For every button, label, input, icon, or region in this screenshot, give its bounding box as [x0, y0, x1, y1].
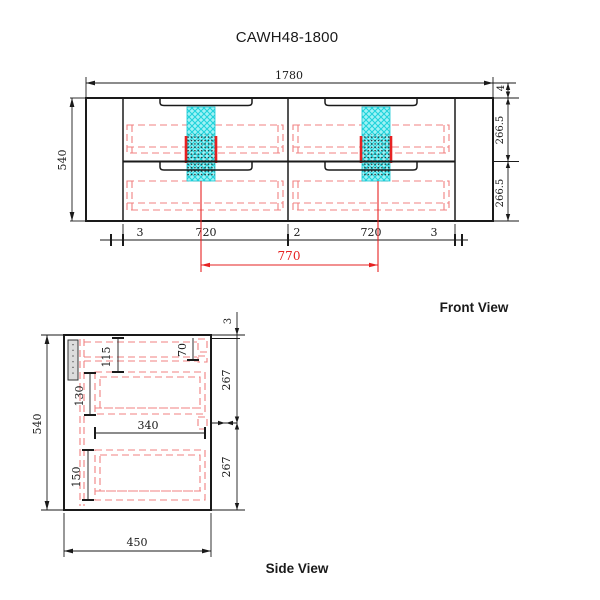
front-right-dimensions: 4 266.5 266.5 — [493, 83, 519, 221]
side-top-gap: 3 — [223, 318, 234, 324]
front-top-gap: 4 — [496, 85, 507, 91]
front-lower-front-height: 266.5 — [495, 179, 506, 208]
side-lower-box-height: 150 — [70, 467, 83, 488]
front-left-gap: 3 — [137, 226, 144, 239]
vanity-cabinet-drawing: CAWH48-1800 — [0, 0, 600, 600]
side-top-to-rail: 70 — [176, 343, 189, 357]
front-overall-height: 540 — [56, 150, 69, 171]
front-overall-width: 1780 — [275, 69, 303, 82]
wall-mount-rail — [68, 340, 78, 380]
side-upper-box-height: 130 — [73, 386, 86, 407]
side-top-to-drawer-box: 115 — [100, 347, 113, 368]
front-bracket-centers: 770 — [278, 249, 301, 263]
front-center-gap: 2 — [294, 226, 301, 239]
front-left-front-width: 720 — [196, 226, 217, 239]
side-overall-height: 540 — [31, 414, 44, 435]
side-lower-front-height: 267 — [220, 457, 233, 478]
side-right-dimensions: 3 267 267 — [211, 312, 245, 510]
side-internal-dimensions: 115 70 130 150 340 — [70, 338, 205, 500]
front-bottom-dimensions: 3 720 2 720 3 — [100, 224, 468, 246]
side-view-label: Side View — [266, 561, 329, 576]
front-bracket-spacing-dimension: 770 — [201, 181, 378, 272]
front-upper-front-height: 266.5 — [495, 116, 506, 145]
side-depth-dimension: 450 — [64, 513, 211, 557]
front-height-dimension: 540 — [56, 98, 86, 221]
side-upper-front-height: 267 — [220, 370, 233, 391]
front-view-drawing: 1780 540 4 266.5 266.5 — [56, 69, 519, 315]
side-overall-depth: 450 — [127, 536, 148, 549]
drawing-title: CAWH48-1800 — [236, 29, 339, 46]
side-height-dimension: 540 — [31, 335, 64, 510]
technical-drawing-page: CAWH48-1800 — [0, 0, 600, 600]
side-internal-depth: 340 — [138, 419, 159, 432]
front-right-gap: 3 — [431, 226, 438, 239]
side-view-drawing: 540 3 267 267 115 — [31, 312, 329, 576]
front-width-dimension: 1780 — [86, 69, 493, 97]
front-view-label: Front View — [440, 300, 509, 315]
